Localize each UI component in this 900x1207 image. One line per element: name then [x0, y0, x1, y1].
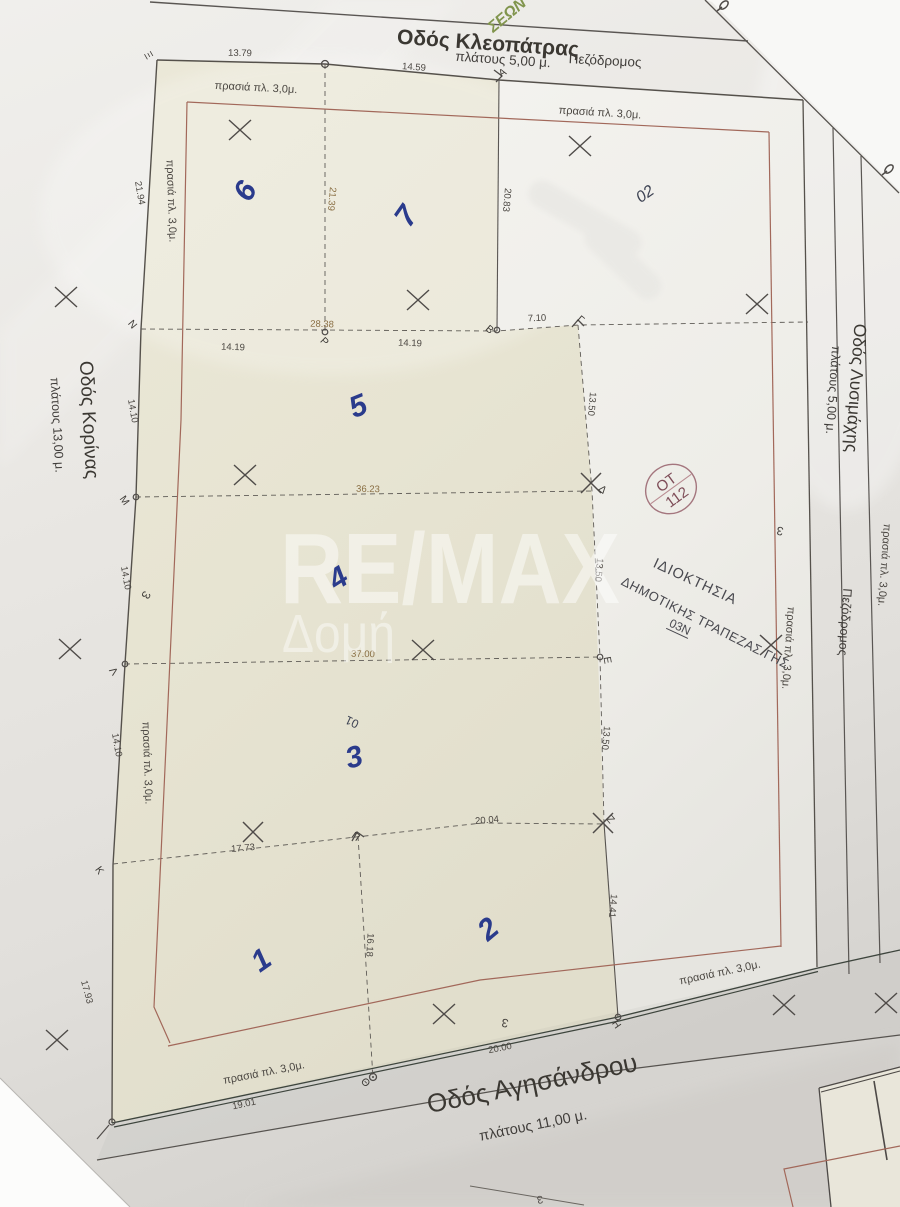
svg-text:14.59: 14.59: [402, 61, 426, 74]
svg-text:13.50: 13.50: [585, 392, 598, 417]
svg-text:14.41: 14.41: [606, 894, 619, 919]
svg-text:13.79: 13.79: [228, 48, 252, 59]
svg-text:21.39: 21.39: [325, 187, 338, 212]
svg-text:17.73: 17.73: [231, 842, 256, 855]
svg-text:28.38: 28.38: [310, 319, 334, 331]
svg-text:Δομή: Δομή: [282, 604, 395, 664]
svg-text:16.18: 16.18: [363, 933, 375, 957]
svg-text:7.10: 7.10: [528, 313, 547, 325]
svg-text:20.04: 20.04: [475, 814, 500, 827]
svg-text:13.50: 13.50: [599, 726, 612, 751]
svg-text:14.19: 14.19: [398, 338, 422, 350]
svg-text:14.19: 14.19: [221, 342, 245, 354]
svg-text:20.83: 20.83: [500, 188, 513, 213]
svg-text:36.23: 36.23: [356, 484, 380, 495]
